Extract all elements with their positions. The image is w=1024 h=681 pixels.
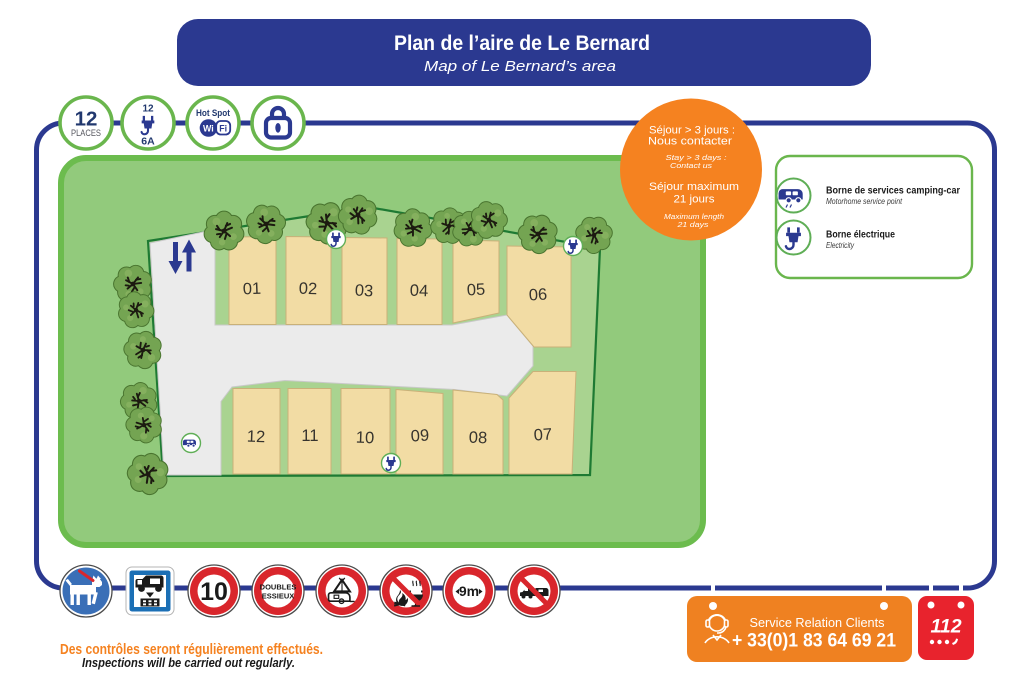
svg-text:Nous contacter: Nous contacter: [648, 136, 732, 148]
svg-text:Wi: Wi: [203, 124, 214, 134]
svg-text:10: 10: [200, 578, 228, 606]
svg-text:ESSIEUX: ESSIEUX: [262, 592, 295, 601]
svg-text:PLACES: PLACES: [71, 128, 101, 138]
svg-text:Hot Spot: Hot Spot: [196, 108, 230, 118]
svg-text:Service Relation Clients: Service Relation Clients: [750, 615, 885, 630]
svg-text:Motorhome service point: Motorhome service point: [826, 197, 903, 206]
svg-text:10: 10: [356, 429, 375, 448]
svg-text:08: 08: [469, 429, 488, 448]
svg-text:Borne de services camping-car: Borne de services camping-car: [826, 185, 960, 197]
svg-text:11: 11: [301, 427, 318, 445]
svg-text:05: 05: [466, 281, 485, 300]
svg-text:Contact us: Contact us: [670, 161, 712, 170]
svg-text:6A: 6A: [141, 136, 155, 148]
svg-text:21 jours: 21 jours: [674, 194, 716, 206]
svg-text:04: 04: [410, 282, 429, 301]
svg-text:+ 33(0)1 83 64 69 21: + 33(0)1 83 64 69 21: [732, 631, 896, 652]
svg-text:06: 06: [528, 286, 547, 305]
svg-text:02: 02: [299, 280, 318, 299]
svg-text:DOUBLES: DOUBLES: [260, 583, 297, 592]
svg-text:Fi: Fi: [219, 124, 227, 134]
svg-text:Séjour maximum: Séjour maximum: [649, 181, 739, 193]
svg-text:12: 12: [142, 104, 154, 115]
svg-text:03: 03: [354, 282, 373, 301]
svg-text:07: 07: [533, 425, 553, 444]
svg-text:21 days: 21 days: [676, 220, 708, 229]
svg-text:Electricity: Electricity: [826, 241, 855, 250]
svg-text:01: 01: [243, 280, 262, 299]
svg-text:09: 09: [410, 426, 430, 445]
svg-text:Map of Le Bernard’s area: Map of Le Bernard’s area: [424, 58, 616, 75]
svg-text:Inspections will be carried ou: Inspections will be carried out regularl…: [82, 655, 295, 670]
svg-text:Borne électrique: Borne électrique: [826, 229, 895, 241]
svg-text:12: 12: [247, 428, 266, 447]
svg-text:Plan de l’aire de Le Bernard: Plan de l’aire de Le Bernard: [394, 32, 650, 55]
svg-text:9m: 9m: [459, 583, 479, 599]
svg-text:112: 112: [930, 616, 961, 638]
